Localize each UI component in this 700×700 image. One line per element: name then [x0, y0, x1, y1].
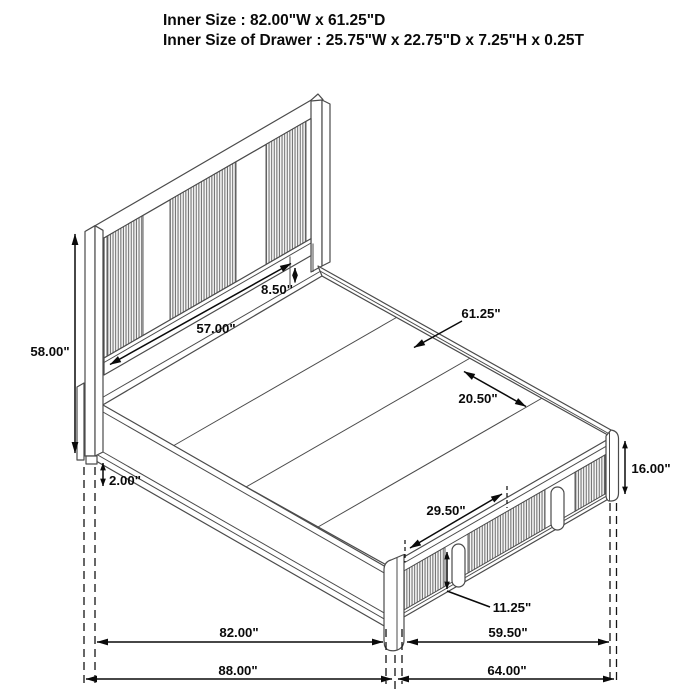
label-rail-thickness: 2.00": [109, 473, 141, 488]
title-inner-size: Inner Size : 82.00"W x 61.25"D: [163, 12, 385, 29]
left-post-front: [85, 226, 95, 456]
label-inner-width: 82.00": [219, 625, 258, 640]
drawer-handle-2: [551, 487, 564, 530]
label-overall-depth: 64.00": [487, 663, 526, 678]
left-post-foot: [86, 456, 97, 464]
label-panel-spacing: 20.50": [458, 391, 497, 406]
label-drawer-width: 29.50": [426, 503, 465, 518]
right-corner-leg: [606, 430, 619, 501]
headboard-right-post-side: [322, 100, 330, 266]
drawer-handle-1: [452, 544, 465, 587]
label-drawer-height: 11.25": [493, 600, 532, 615]
label-overall-width: 88.00": [218, 663, 257, 678]
front-corner-leg: [384, 555, 404, 651]
label-platform-depth: 61.25": [461, 306, 500, 321]
title-block: Inner Size : 82.00"W x 61.25"D Inner Siz…: [163, 12, 584, 49]
headboard-slat-group-right: [266, 121, 306, 264]
label-base-height: 16.00": [631, 461, 670, 476]
left-post-side: [95, 226, 103, 456]
label-headboard-panel-width: 57.00": [196, 321, 235, 336]
bed-isometric-diagram: 58.00" 57.00" 8.50" 61.25" 20.50" 16.00"…: [0, 0, 700, 700]
label-headboard-clearance: 8.50": [261, 282, 293, 297]
headboard-slat-group-left: [107, 216, 143, 357]
title-inner-size-drawer: Inner Size of Drawer : 25.75"W x 22.75"D…: [163, 32, 584, 49]
leader-drawer-height: [447, 591, 490, 607]
label-side-depth: 59.50": [488, 625, 527, 640]
headboard-left-post: [85, 226, 103, 464]
headboard-rear-leg: [77, 383, 84, 460]
label-bed-height: 58.00": [30, 344, 69, 359]
bed-dimension-diagram-page: 58.00" 57.00" 8.50" 61.25" 20.50" 16.00"…: [0, 0, 700, 700]
